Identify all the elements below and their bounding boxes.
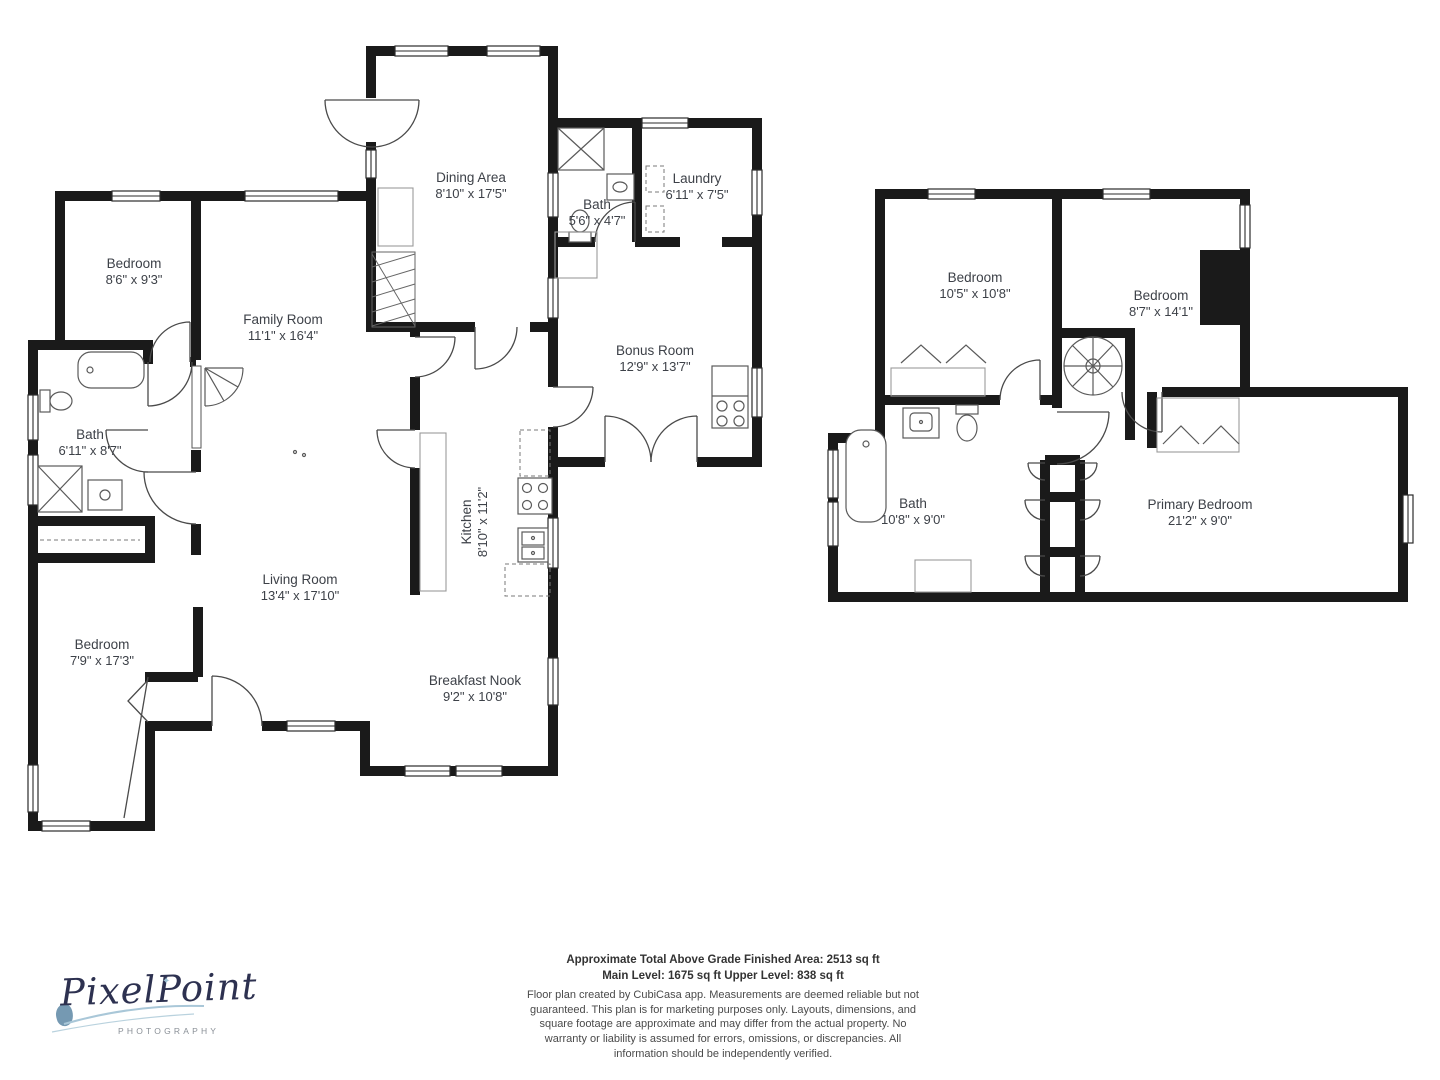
pixelpoint-logo: PixelPoint ✦ PHOTOGRAPHY bbox=[44, 962, 234, 1052]
dining-furniture bbox=[378, 188, 413, 246]
ceiling-mark bbox=[294, 451, 297, 454]
main-walls bbox=[28, 46, 762, 831]
chimney bbox=[1200, 250, 1245, 325]
sink-icon bbox=[607, 174, 634, 200]
toilet-icon bbox=[40, 390, 72, 412]
sink-icon bbox=[903, 408, 939, 438]
ceiling-mark bbox=[303, 454, 306, 457]
winder-stairs-icon bbox=[205, 368, 243, 406]
room-label-bonus-room: Bonus Room 12'9" x 13'7" bbox=[616, 343, 694, 375]
main-windows bbox=[28, 46, 762, 831]
room-label-bath: Bath 5'6" x 4'7" bbox=[569, 197, 626, 229]
logo-subtitle: PHOTOGRAPHY bbox=[118, 1026, 219, 1036]
room-label-dining-area: Dining Area 8'10" x 17'5" bbox=[435, 170, 506, 202]
bathtub-icon bbox=[78, 352, 144, 388]
kitchen-sink-icon bbox=[518, 528, 548, 562]
room-label-bedroom-2: Bedroom 7'9" x 17'3" bbox=[70, 637, 134, 669]
main-level-plan bbox=[28, 46, 762, 831]
shower-icon bbox=[38, 466, 82, 512]
spiral-stairs-icon bbox=[1064, 337, 1122, 395]
room-label-kitchen: Kitchen 8'10" x 11'2" bbox=[459, 487, 491, 557]
bonus-stove-icon bbox=[712, 366, 748, 428]
stairs-hatched bbox=[372, 252, 415, 327]
total-area-line: Approximate Total Above Grade Finished A… bbox=[508, 952, 938, 968]
room-label-upper-bath: Bath 10'8" x 9'0" bbox=[881, 496, 945, 528]
level-areas-line: Main Level: 1675 sq ft Upper Level: 838 … bbox=[508, 968, 938, 984]
room-label-breakfast-nook: Breakfast Nook 9'2" x 10'8" bbox=[429, 673, 521, 705]
room-label-family-room: Family Room 11'1" x 16'4" bbox=[243, 312, 323, 344]
shower-icon bbox=[558, 128, 604, 170]
room-label-upper-bedroom-1: Bedroom 10'5" x 10'8" bbox=[939, 270, 1010, 302]
logo-swoosh-icon bbox=[44, 962, 234, 1052]
toilet-icon bbox=[956, 405, 978, 441]
room-label-bedroom: Bedroom 8'6" x 9'3" bbox=[106, 256, 163, 288]
stove-icon bbox=[518, 478, 552, 514]
footer: Approximate Total Above Grade Finished A… bbox=[508, 952, 938, 1061]
room-label-upper-bedroom-2: Bedroom 8'7" x 14'1" bbox=[1129, 288, 1193, 320]
room-label-living-room: Living Room 13'4" x 17'10" bbox=[261, 572, 340, 604]
upper-level-plan bbox=[828, 189, 1413, 602]
floorplan-page: Bedroom 8'6" x 9'3" Family Room 11'1" x … bbox=[0, 0, 1440, 1080]
laundry-appliances bbox=[646, 166, 664, 232]
sink-icon bbox=[88, 480, 122, 510]
disclaimer-text: Floor plan created by CubiCasa app. Meas… bbox=[523, 988, 923, 1061]
room-label-laundry: Laundry 6'11" x 7'5" bbox=[665, 171, 728, 203]
room-label-bath-2: Bath 6'11" x 8'7" bbox=[58, 427, 121, 459]
floorplan-drawing bbox=[0, 0, 1440, 1080]
room-label-primary-bedroom: Primary Bedroom 21'2" x 9'0" bbox=[1147, 497, 1252, 529]
bath-cabinet bbox=[915, 560, 971, 592]
